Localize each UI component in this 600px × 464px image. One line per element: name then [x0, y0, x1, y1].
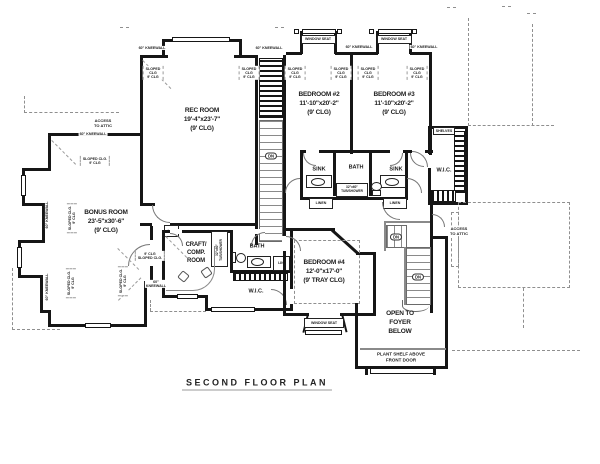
- sloped-clg-label: SLOPED CLG 9' CLG: [407, 66, 428, 80]
- second-floor-plan: DN WINDOW SEAT WINDOW SEAT 32"x60" TUB/S…: [0, 0, 600, 464]
- sink-label: SINK: [389, 167, 402, 174]
- sloped-clg-label: SLOPED CLG. 9' CLG: [67, 203, 77, 233]
- sloped-ceiling-line: [51, 140, 76, 165]
- room-label-bed2: BEDROOM #2 11'-10"x20'-2" (9' CLG): [299, 91, 340, 117]
- wall-segment: [283, 228, 335, 231]
- stair-dn-label: DN: [265, 153, 277, 160]
- window: [378, 29, 412, 34]
- room-label-foyer: OPEN TO FOYER BELOW: [386, 310, 414, 336]
- window-seat-label: WINDOW SEAT: [380, 37, 408, 41]
- roof-outline-dashed: [12, 329, 60, 330]
- roof-outline-dashed: [24, 96, 25, 113]
- wic-label: W.I.C.: [437, 168, 452, 175]
- sloped-clg-label: SLOPED CLG. 9' CLG: [66, 268, 76, 298]
- wall-segment: [335, 52, 378, 55]
- wall-segment: [340, 313, 376, 316]
- sloped-clg-label: SLOPED CLG 9' CLG: [285, 66, 306, 80]
- roof-outline-dashed: [120, 27, 129, 28]
- wall-segment: [300, 150, 303, 200]
- sink-basin: [311, 178, 325, 186]
- bath-label: BATH: [349, 165, 364, 172]
- door-swing: [285, 178, 300, 193]
- roof-outline-dashed: [458, 202, 570, 288]
- window: [305, 330, 342, 335]
- plant-shelf-label: PLANT SHELF ABOVE FRONT DOOR: [376, 351, 426, 362]
- room-label-rec: REC ROOM 19'-4"x23'-7" (9' CLG): [184, 107, 220, 133]
- window: [172, 37, 230, 42]
- plan-title: SECOND FLOOR PLAN: [182, 378, 332, 391]
- tub-label: 32"x60" TUB/SHOWER: [216, 233, 224, 267]
- kneewall-label: 60" KNEEWALL: [45, 201, 49, 230]
- window: [211, 307, 255, 312]
- sink-label: SINK: [312, 167, 325, 174]
- window-seat-label: WINDOW SEAT: [304, 37, 332, 41]
- wall-segment: [365, 366, 368, 375]
- sink-basin: [385, 178, 399, 186]
- sloped-clg-label: SLOPED CLG 9' CLG: [239, 66, 260, 80]
- roof-outline-dashed: [468, 125, 554, 126]
- linen-label: LINEN: [315, 201, 328, 205]
- sloped-clg-label: SLOPED CLG. 9' CLG: [118, 266, 128, 296]
- sink-basin: [251, 258, 264, 266]
- tub-shower: 32"x60" TUB/SHOWER: [336, 183, 368, 197]
- bath-label: BATH: [250, 244, 265, 251]
- wall-segment: [428, 126, 431, 154]
- room-label-craft: CRAFT/ COMP. ROOM: [186, 241, 207, 265]
- wall-segment: [22, 168, 51, 171]
- window: [17, 247, 22, 268]
- roof-outline-dashed: [532, 24, 533, 126]
- roof-outline-dashed: [523, 288, 524, 328]
- stair-treads: [259, 120, 283, 242]
- kneewall-label: 60" KNEEWALL: [255, 46, 284, 50]
- wall-segment: [465, 126, 468, 205]
- attic-access-label: ACCESS TO ATTIC: [449, 226, 469, 236]
- wall-segment: [40, 275, 43, 313]
- sloped-clg-label: SLOPED CLG. 9' CLG: [80, 156, 110, 166]
- sloped-clg-label: SLOPED CLG 9' CLG: [358, 66, 379, 80]
- window: [302, 29, 336, 34]
- wall-segment: [283, 313, 309, 316]
- shelf-hatch: [454, 131, 465, 193]
- shelf-hatch: [233, 273, 288, 281]
- roof-outline-dashed: [468, 18, 469, 126]
- sloped-clg-label: SLOPED CLG 9' CLG: [143, 66, 164, 80]
- wall-segment: [140, 55, 168, 58]
- wall-segment: [144, 283, 147, 327]
- wall-segment: [150, 226, 153, 240]
- roof-outline-dashed: [150, 311, 206, 312]
- wic-label: W.I.C.: [249, 289, 264, 296]
- post: [337, 29, 342, 34]
- door-swing: [432, 214, 445, 227]
- window: [21, 175, 26, 196]
- roof-outline-dashed: [452, 350, 580, 351]
- wall-segment: [433, 366, 436, 375]
- wall-segment: [18, 240, 45, 243]
- roof-outline-dashed: [527, 13, 536, 14]
- door-swing: [390, 153, 403, 166]
- shelf-hatch: [431, 190, 456, 202]
- kneewall-label: 60" KNEEWALL: [145, 280, 167, 288]
- kneewall-label: 60" KNEEWALL: [45, 273, 49, 302]
- stair-dn-label: DN: [390, 234, 402, 241]
- kneewall-label: 60" KNEEWALL: [410, 45, 439, 49]
- room-label-bed3: BEDROOM #3 11'-10"x20'-2" (9' CLG): [374, 91, 415, 117]
- post: [369, 29, 374, 34]
- roof-outline-dashed: [12, 268, 13, 330]
- roof-outline-dashed: [447, 7, 456, 8]
- room-label-bonus: BONUS ROOM 23'-5"x30'-6" (9' CLG): [84, 209, 128, 235]
- window: [85, 323, 111, 328]
- shelves-label: SHELVES: [435, 129, 454, 133]
- toilet-tank: [372, 190, 381, 196]
- room-label-bed4: BEDROOM #4 12'-0"x17'-0" (9' TRAY CLG): [303, 259, 344, 285]
- stair-dn-label: DN: [412, 274, 424, 281]
- wall-segment: [355, 303, 358, 369]
- wall-segment: [48, 133, 51, 171]
- door-swing: [152, 205, 170, 223]
- post: [412, 29, 417, 34]
- wall-segment: [283, 55, 286, 245]
- roof-outline-dashed: [502, 6, 511, 7]
- front-door-window: [370, 368, 434, 374]
- window-seat-label: WINDOW SEAT: [310, 321, 338, 325]
- attic-access-label: ACCESS TO ATTIC: [93, 118, 113, 128]
- post: [294, 29, 299, 34]
- wall-segment: [255, 55, 258, 245]
- window: [177, 294, 198, 299]
- toilet: [236, 253, 246, 263]
- roof-outline-dashed: [150, 300, 151, 311]
- kneewall-label: 60" KNEEWALL: [79, 132, 108, 136]
- door-swing: [412, 151, 428, 167]
- sloped-clg-label: SLOPED CLG 9' CLG: [331, 66, 352, 80]
- door-swing: [382, 202, 400, 220]
- sloped-clg-label: 9' CLG SLOPED CLG.: [135, 251, 165, 261]
- attic-storage-hatch: [259, 58, 283, 118]
- wall-segment: [430, 236, 448, 239]
- kneewall-label: 60" KNEEWALL: [138, 46, 167, 50]
- door-swing: [407, 178, 422, 193]
- door-swing: [303, 153, 316, 166]
- wall-segment: [373, 252, 376, 316]
- kneewall-label: 60" KNEEWALL: [345, 45, 374, 49]
- roof-outline-dashed: [275, 27, 284, 28]
- roof-outline-dashed: [24, 112, 119, 113]
- stair-rail: [384, 221, 430, 223]
- plant-shelf-line: [360, 348, 446, 350]
